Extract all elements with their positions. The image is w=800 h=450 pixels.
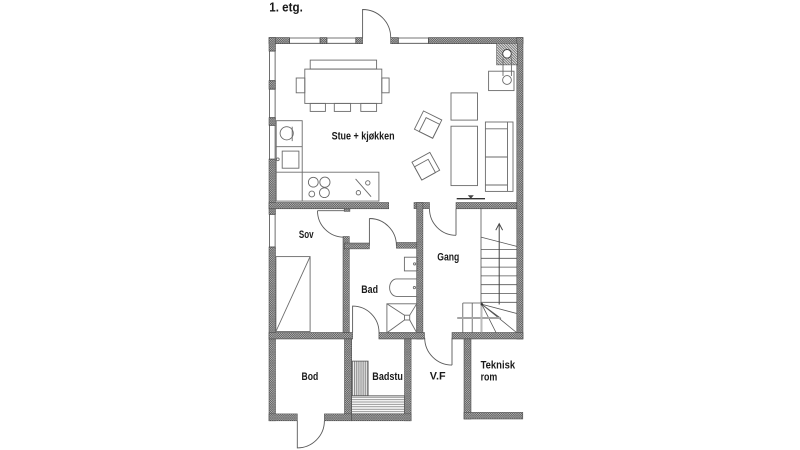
- svg-text:V.F: V.F: [430, 371, 446, 383]
- svg-text:1. etg.: 1. etg.: [269, 0, 303, 14]
- svg-text:Bod: Bod: [302, 371, 319, 383]
- svg-text:Gang: Gang: [437, 251, 459, 263]
- svg-text:Sov: Sov: [299, 229, 314, 241]
- svg-text:rom: rom: [481, 372, 498, 384]
- svg-text:Badstu: Badstu: [372, 371, 403, 383]
- svg-text:Bad: Bad: [361, 284, 378, 296]
- svg-text:Stue + kjøkken: Stue + kjøkken: [332, 130, 395, 142]
- svg-text:Teknisk: Teknisk: [481, 360, 516, 372]
